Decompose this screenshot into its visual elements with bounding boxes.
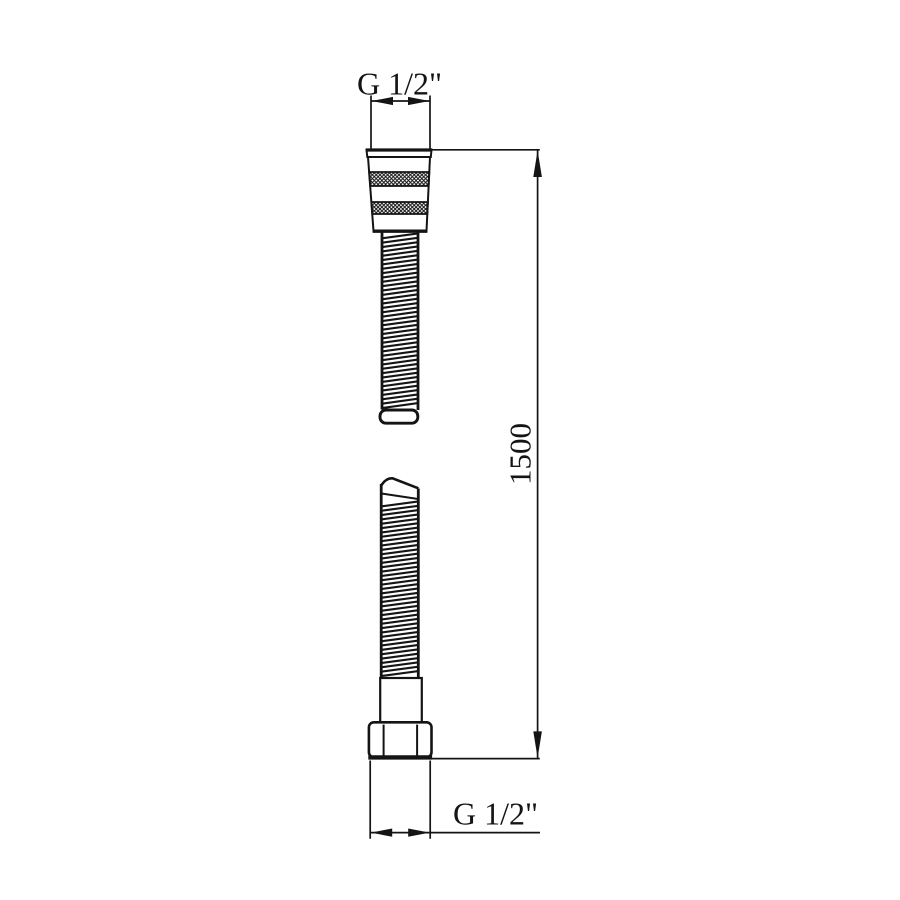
hose-lower-segment [380, 478, 419, 679]
arrowhead-right-icon [408, 829, 430, 837]
top-cone-fitting [366, 150, 432, 231]
hose-break-coil-line [382, 494, 419, 500]
top-thread-dimension [371, 96, 430, 149]
hose-break-end [380, 410, 418, 423]
hex-nut [369, 722, 432, 757]
hose-break-start-edge [381, 478, 418, 488]
cone-body [368, 157, 430, 231]
top-thread-label: G 1/2" [357, 66, 442, 102]
hose-upper-coils [381, 233, 419, 408]
bottom-thread-label: G 1/2" [453, 796, 538, 832]
hose-lower-coils [380, 501, 419, 676]
drawing-canvas: G 1/2" 1500 [0, 0, 900, 900]
knurl-band-lower [371, 202, 428, 214]
knurl-band-upper [369, 172, 429, 186]
hose-lower-clip-group [380, 494, 419, 677]
arrowhead-up-icon [533, 150, 542, 177]
bottom-fitting [368, 678, 432, 757]
arrowhead-left-icon [371, 829, 393, 837]
hose-upper-segment [380, 233, 419, 424]
hose-technical-drawing: G 1/2" 1500 [0, 0, 900, 900]
arrowhead-down-icon [533, 731, 542, 758]
ferrule [380, 678, 422, 723]
length-label: 1500 [503, 423, 538, 485]
